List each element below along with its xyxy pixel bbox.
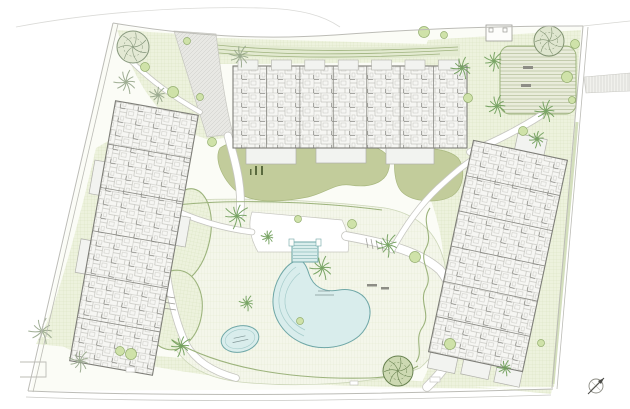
- palm-frond: [28, 331, 42, 332]
- bush-icon: [441, 32, 448, 39]
- palm-trunk: [461, 67, 464, 70]
- building-north: [233, 60, 467, 164]
- bush-icon: [348, 220, 357, 229]
- palm-trunk: [236, 215, 239, 218]
- building-footprint: [233, 66, 467, 148]
- palm-trunk: [504, 367, 507, 370]
- plaza-bench: [521, 84, 531, 87]
- round-tree-icon: [534, 26, 564, 56]
- bench: [367, 284, 377, 287]
- bush-icon: [168, 87, 179, 98]
- bush-icon: [208, 138, 217, 147]
- bush-icon: [184, 38, 191, 45]
- palm-trunk: [321, 267, 324, 270]
- palm-trunk: [536, 138, 539, 141]
- palm-trunk: [79, 360, 82, 363]
- bush-icon: [562, 72, 573, 83]
- palm-trunk: [496, 105, 499, 108]
- bush-icon: [126, 349, 137, 360]
- round-tree-icon: [383, 356, 413, 386]
- bush-icon: [297, 318, 304, 325]
- pool-step-post: [289, 239, 294, 246]
- site-plan-drawing: [0, 0, 630, 409]
- plan-root: [16, 8, 630, 401]
- round-tree-icon: [117, 31, 149, 63]
- boundary-line: [583, 21, 630, 26]
- balcony: [338, 60, 358, 70]
- parking-strip: [584, 73, 630, 93]
- pool-step-post: [316, 239, 321, 246]
- bush-icon: [197, 94, 204, 101]
- terrace: [246, 148, 296, 164]
- palm-trunk: [180, 345, 183, 348]
- bush-icon: [116, 347, 125, 356]
- bush-icon: [464, 94, 473, 103]
- lawn-plant-mark: [261, 166, 263, 175]
- bush-icon: [295, 216, 302, 223]
- utility-box: [350, 381, 358, 385]
- terrace: [316, 148, 366, 163]
- palm-trunk: [387, 244, 390, 247]
- bush-icon: [569, 97, 576, 104]
- bush-icon: [571, 40, 580, 49]
- balcony: [405, 60, 425, 70]
- utility-box: [126, 367, 135, 372]
- palm-trunk: [267, 236, 270, 239]
- bush-icon: [519, 127, 528, 136]
- lawn-plant-mark: [250, 169, 252, 175]
- palm-trunk: [493, 60, 496, 63]
- bush-icon: [538, 340, 545, 347]
- bush-icon: [141, 63, 150, 72]
- palm-trunk: [239, 55, 242, 58]
- bench: [381, 287, 389, 290]
- balcony: [305, 60, 325, 70]
- boundary-line: [16, 8, 340, 27]
- site-plan-page: [0, 0, 630, 409]
- palm-trunk: [246, 302, 249, 305]
- bush-icon: [419, 27, 430, 38]
- bush-icon: [410, 252, 421, 263]
- terrace: [386, 148, 434, 164]
- lawn-plant-mark: [255, 166, 257, 175]
- bush-icon: [445, 339, 456, 350]
- plaza-bench: [523, 66, 533, 69]
- balcony: [372, 60, 392, 70]
- boundary-line: [26, 395, 551, 401]
- utility-box: [430, 377, 440, 382]
- palm-trunk: [545, 110, 548, 113]
- north-arrow-icon: [588, 378, 604, 394]
- balcony: [271, 60, 291, 70]
- palm-trunk: [157, 94, 160, 97]
- palm-trunk: [125, 81, 128, 84]
